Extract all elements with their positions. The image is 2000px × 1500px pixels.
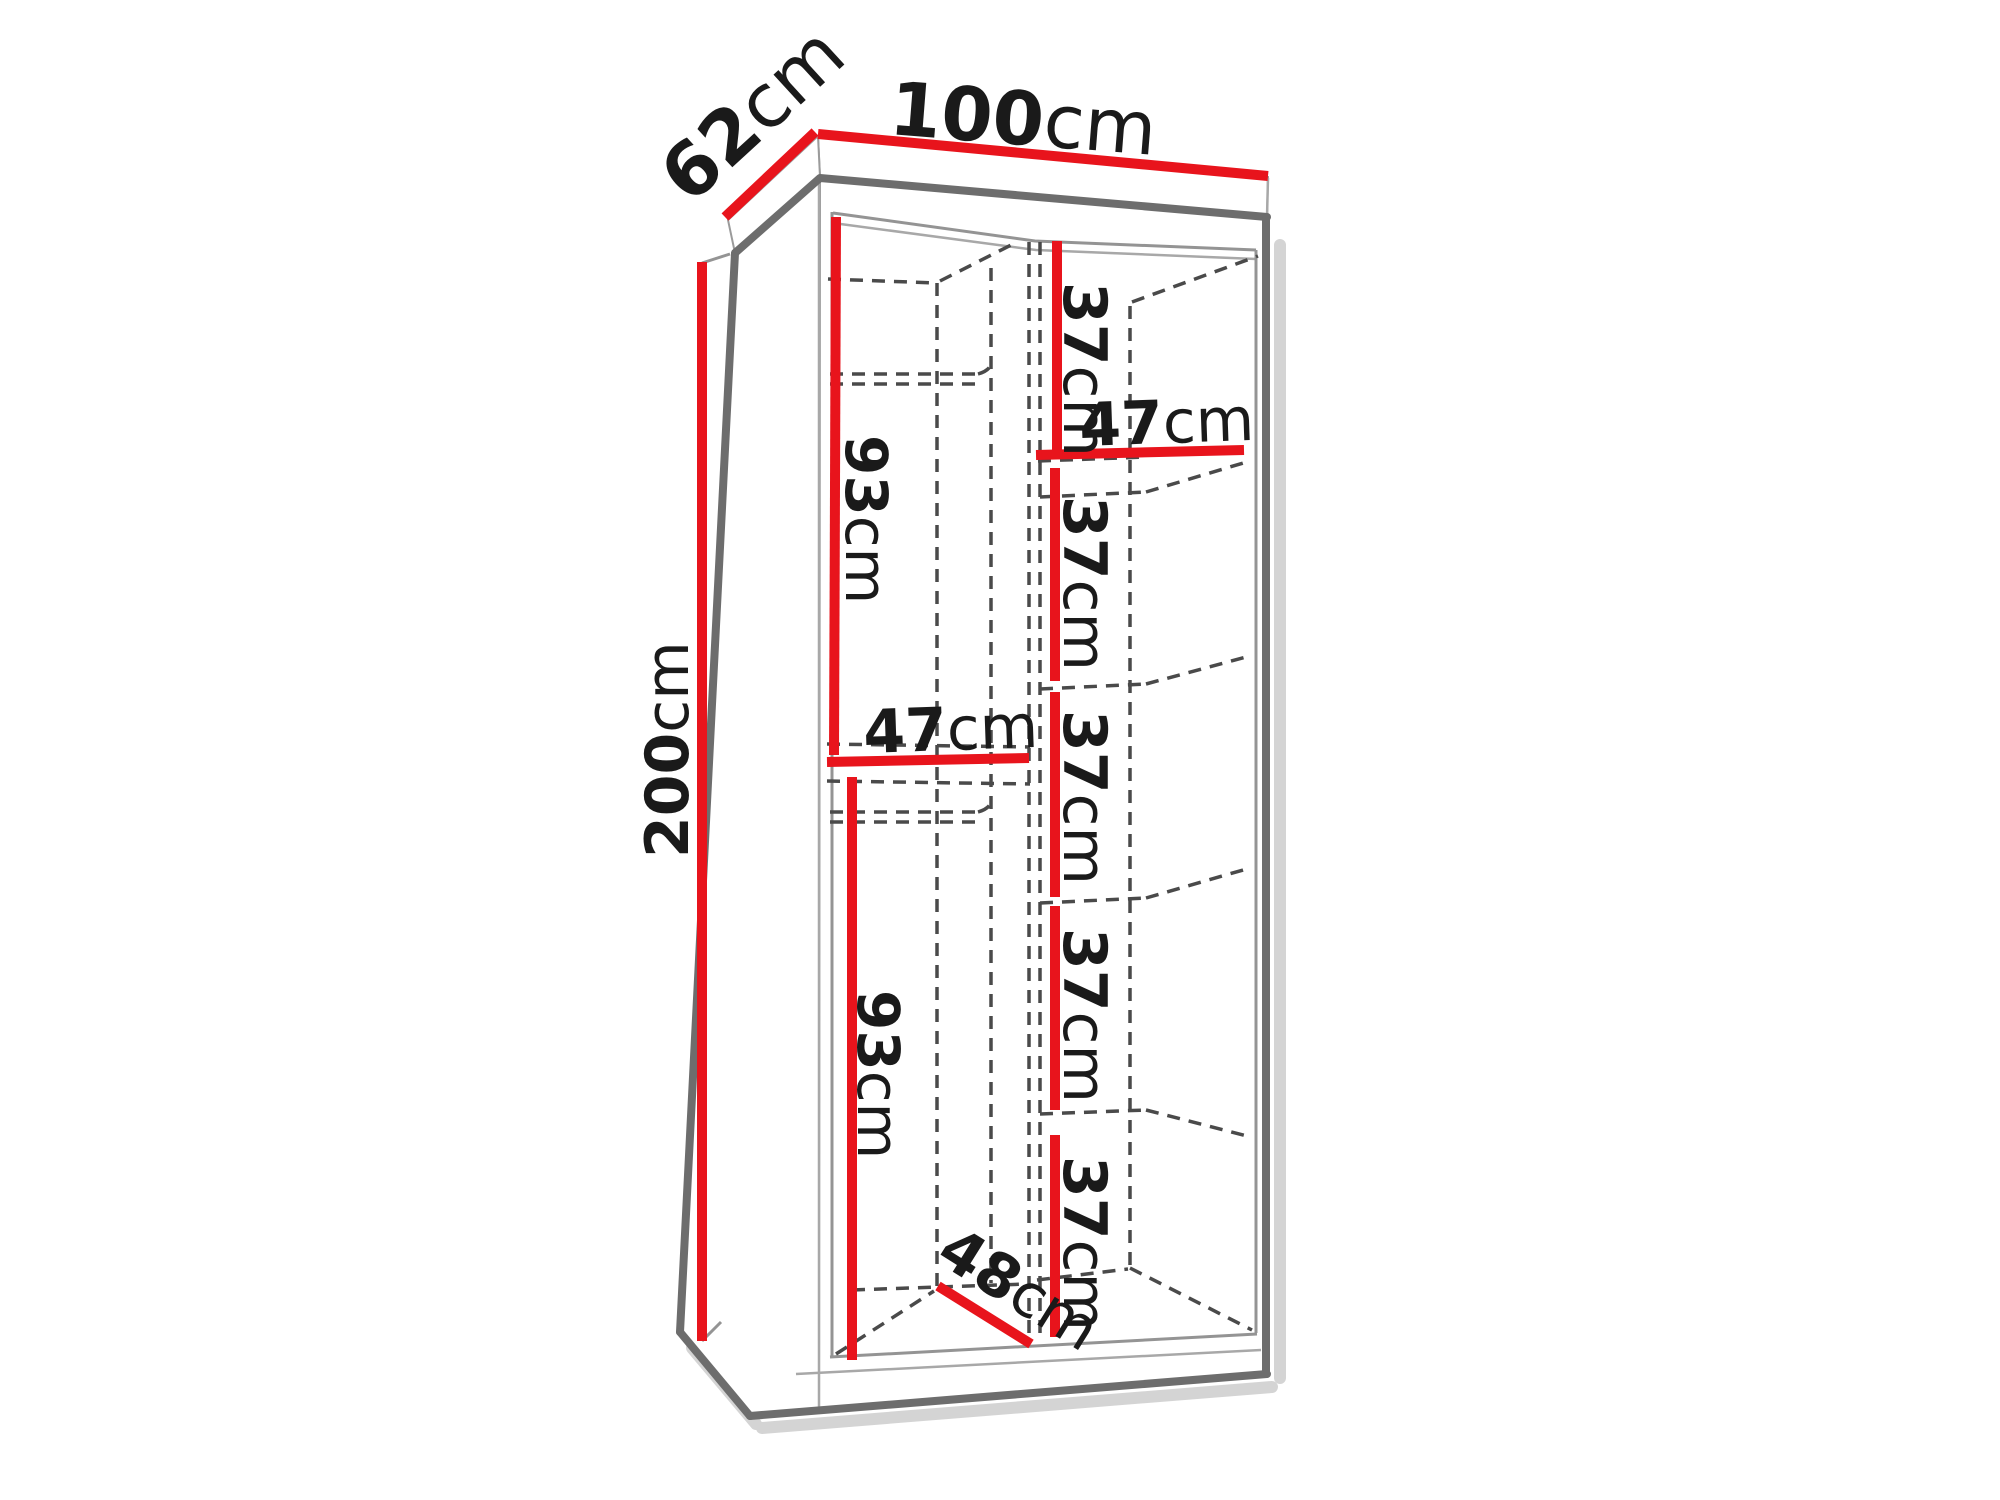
- dim-label-height: 200cm: [633, 641, 703, 858]
- dim-label-shelf-4: 37cm: [1049, 928, 1119, 1103]
- wardrobe-dimension-diagram: 100cm 62cm 200cm 93cm 47cm 93cm 48cm 47c…: [0, 0, 2000, 1500]
- dim-label-shelf-5: 37cm: [1049, 1156, 1119, 1331]
- dim-label-left-top-section: 93cm: [832, 435, 900, 604]
- dim-label-left-bottom-section: 93cm: [844, 990, 912, 1159]
- dim-label-left-shelf-width: 47cm: [862, 692, 1039, 768]
- dim-label-shelf-2: 37cm: [1049, 496, 1119, 671]
- height-tick-top: [702, 254, 730, 263]
- crown-right-edge: [1267, 178, 1268, 217]
- wardrobe-dimension-diagram-page: 100cm 62cm 200cm 93cm 47cm 93cm 48cm 47c…: [0, 0, 2000, 1500]
- dim-label-shelf-1: 37cm: [1049, 282, 1119, 457]
- front-face: [819, 178, 1267, 1411]
- dim-label-shelf-3: 37cm: [1049, 710, 1119, 885]
